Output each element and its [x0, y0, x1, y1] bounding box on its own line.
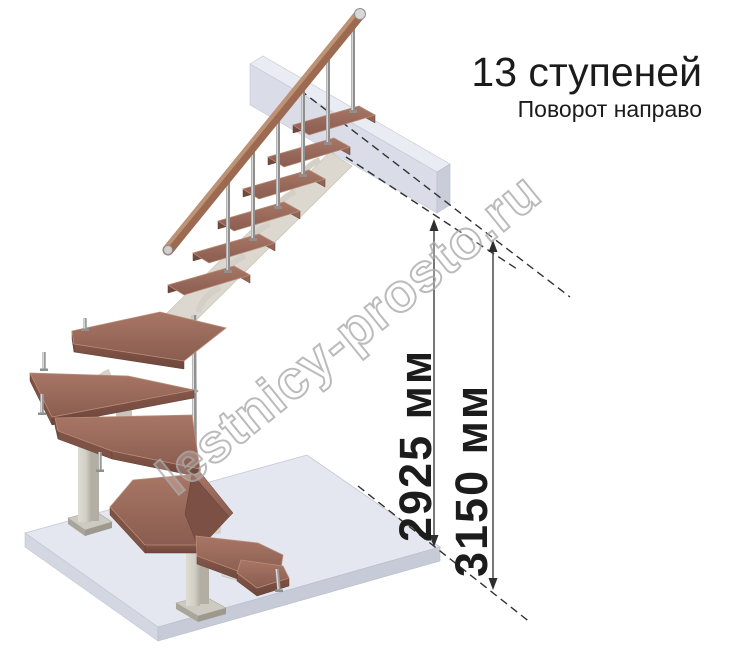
- baluster: [349, 24, 357, 113]
- handrail-top-cap: [355, 9, 366, 20]
- handrail-end-cap: [164, 246, 173, 255]
- tread-7-winder: [72, 312, 226, 369]
- steps-count-title: 13 ступеней: [471, 49, 702, 95]
- staircase-diagram: 2925 мм 3150 мм 13 ступеней Поворот напр…: [0, 0, 744, 655]
- dimension-label-3150: 3150 мм: [446, 384, 497, 577]
- arrow-down-icon: [489, 578, 498, 590]
- diagram-canvas: 2925 мм 3150 мм 13 ступеней Поворот напр…: [0, 0, 744, 655]
- dimension-3150: 3150 мм: [446, 240, 498, 590]
- turn-direction-subtitle: Поворот направо: [518, 96, 702, 122]
- dimension-label-2925: 2925 мм: [390, 349, 441, 542]
